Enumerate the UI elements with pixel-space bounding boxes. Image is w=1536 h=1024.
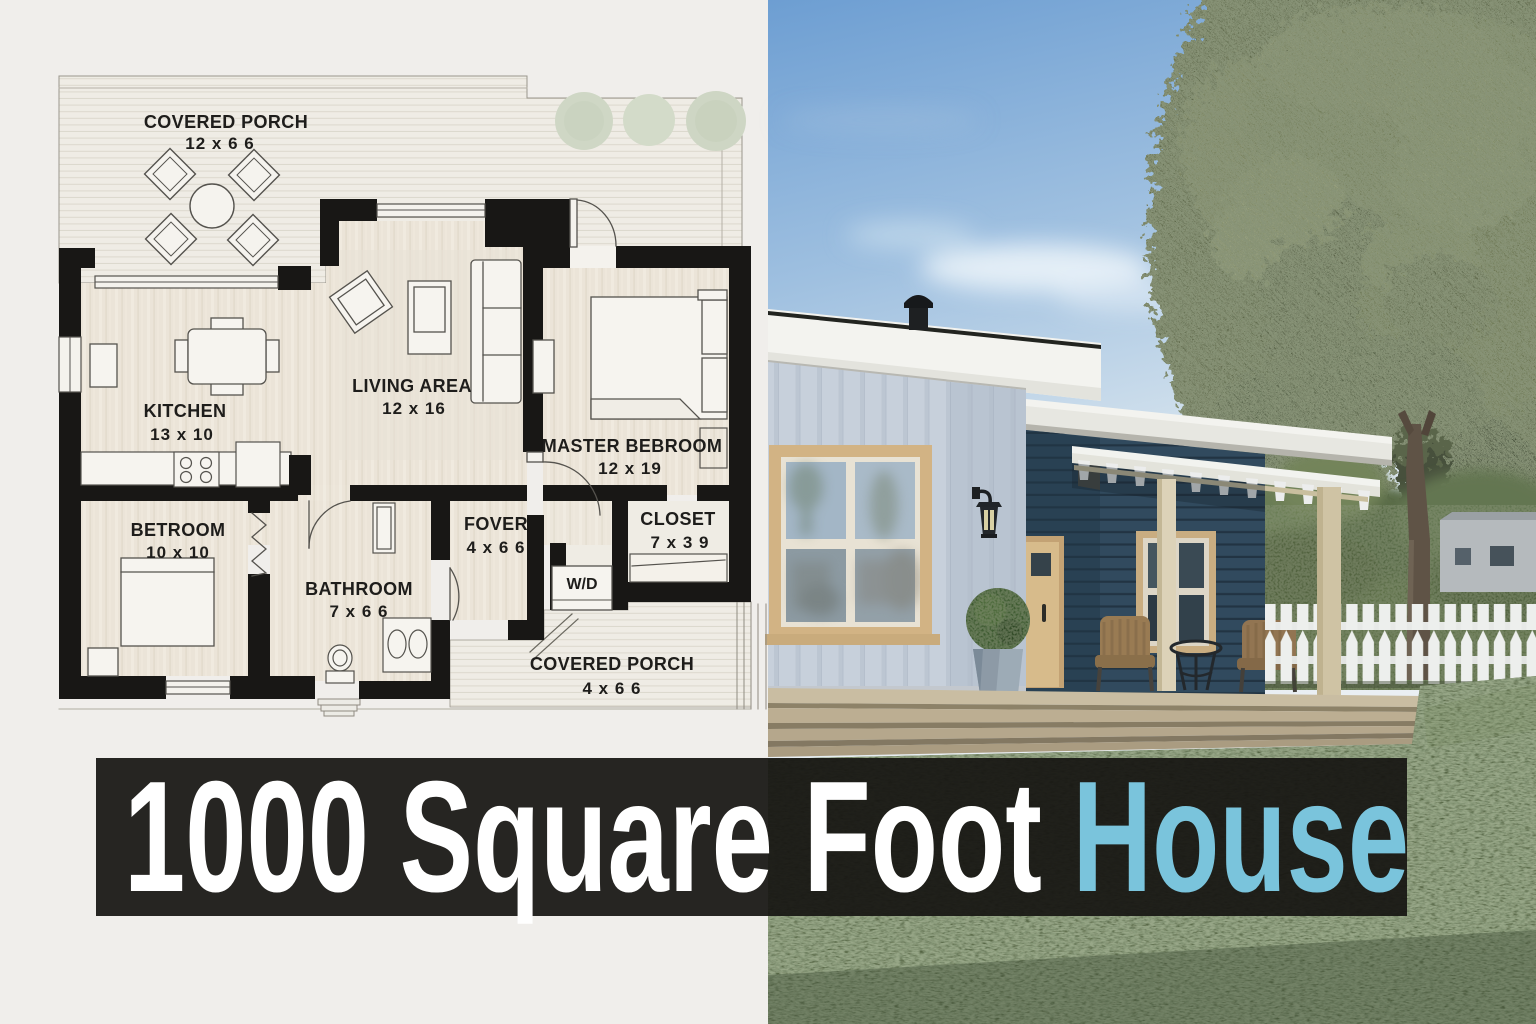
svg-text:12 x 16: 12 x 16 [382,399,446,418]
svg-text:BATHROOM: BATHROOM [305,579,413,599]
svg-text:4 x 6 6: 4 x 6 6 [467,538,526,557]
svg-text:4 x 6 6: 4 x 6 6 [583,679,642,698]
svg-text:1000 Square Foot House: 1000 Square Foot House [124,748,1409,924]
svg-text:COVERED PORCH: COVERED PORCH [530,654,694,674]
svg-text:KITCHEN: KITCHEN [144,401,227,421]
svg-text:10 x 10: 10 x 10 [146,543,210,562]
svg-text:13 x 10: 13 x 10 [150,425,214,444]
svg-text:7 x 6 6: 7 x 6 6 [330,602,389,621]
svg-text:MASTER BEBROOM: MASTER BEBROOM [542,436,723,456]
svg-text:LIVING AREA: LIVING AREA [352,376,472,396]
svg-text:BETROOM: BETROOM [131,520,226,540]
svg-text:7 x 3 9: 7 x 3 9 [651,533,710,552]
svg-text:FOVER: FOVER [464,514,528,534]
svg-text:12 x 19: 12 x 19 [598,459,662,478]
svg-text:COVERED PORCH: COVERED PORCH [144,112,308,132]
svg-text:12 x 6 6: 12 x 6 6 [185,134,254,153]
svg-text:W/D: W/D [566,576,597,593]
svg-text:CLOSET: CLOSET [640,509,715,529]
